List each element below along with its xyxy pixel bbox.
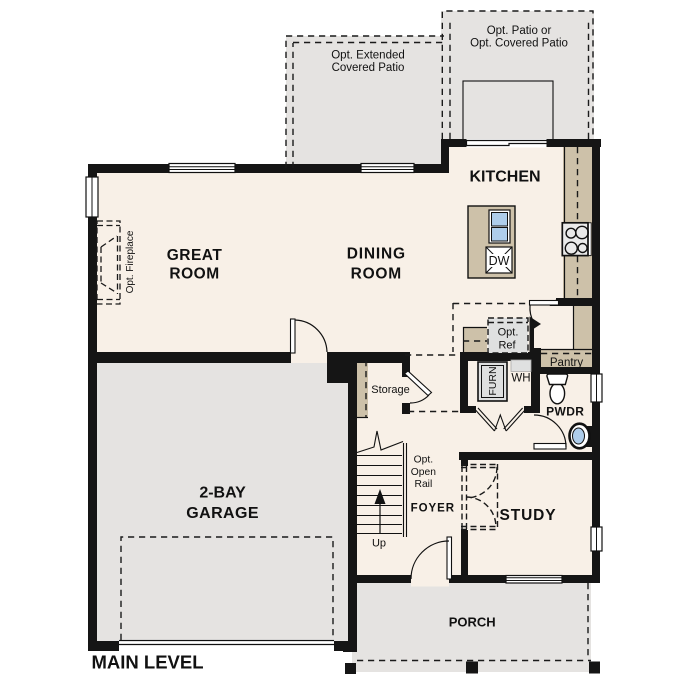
svg-text:FURN: FURN: [487, 366, 499, 395]
svg-text:Ref: Ref: [498, 340, 516, 352]
svg-text:STUDY: STUDY: [499, 507, 556, 524]
svg-text:DW: DW: [489, 254, 510, 268]
svg-text:Open: Open: [411, 467, 436, 478]
svg-text:PORCH: PORCH: [449, 614, 496, 629]
svg-text:Rail: Rail: [415, 479, 433, 490]
svg-text:Up: Up: [372, 538, 386, 550]
svg-text:FOYER: FOYER: [411, 502, 455, 514]
svg-text:Opt. Patio or: Opt. Patio or: [487, 25, 552, 37]
svg-text:MAIN LEVEL: MAIN LEVEL: [92, 652, 204, 673]
svg-text:DINING: DINING: [347, 245, 406, 262]
svg-text:Opt.: Opt.: [414, 455, 433, 466]
svg-text:Covered Patio: Covered Patio: [332, 62, 405, 74]
svg-text:ROOM: ROOM: [169, 266, 219, 283]
svg-text:2-BAY: 2-BAY: [199, 485, 246, 502]
svg-text:GREAT: GREAT: [167, 247, 223, 264]
svg-text:Opt. Fireplace: Opt. Fireplace: [125, 230, 136, 293]
svg-text:Opt. Extended: Opt. Extended: [331, 50, 405, 62]
svg-text:Opt. Covered Patio: Opt. Covered Patio: [470, 38, 568, 50]
svg-text:WH: WH: [511, 373, 530, 385]
svg-text:KITCHEN: KITCHEN: [469, 168, 540, 185]
svg-text:Opt.: Opt.: [498, 327, 519, 339]
svg-text:ROOM: ROOM: [351, 266, 402, 283]
svg-text:PWDR: PWDR: [546, 404, 584, 418]
svg-text:GARAGE: GARAGE: [186, 505, 259, 522]
svg-text:Storage: Storage: [371, 384, 410, 396]
svg-text:Pantry: Pantry: [550, 357, 583, 369]
